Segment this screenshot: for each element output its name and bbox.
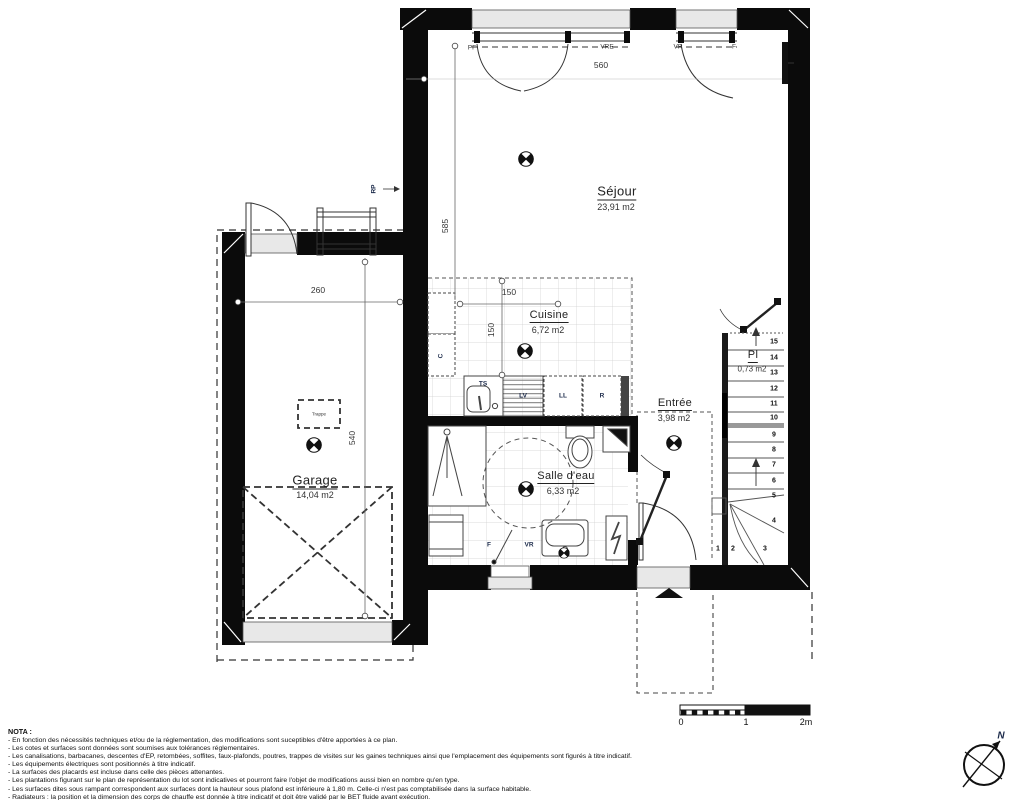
entrance-door-leaf xyxy=(639,503,643,560)
stair-step-number: 12 xyxy=(770,386,778,393)
window-label-vr: VR xyxy=(524,542,533,549)
rp-label: RP xyxy=(371,184,378,193)
porch-dashes xyxy=(637,592,713,693)
opening-label-vr: VR xyxy=(673,44,682,51)
dim-560: 560 xyxy=(594,60,608,70)
french-door-right-swing xyxy=(524,44,568,91)
unit-label-ts: TS xyxy=(479,381,487,388)
room-label-entree: Entrée xyxy=(658,397,692,411)
stair-stringer xyxy=(722,333,728,565)
stair-step-number: 10 xyxy=(770,415,778,422)
nota-line: - La surfaces des placards est incluse d… xyxy=(8,769,1003,777)
wall-light-icon xyxy=(559,548,569,558)
stair-step-number: 11 xyxy=(770,401,777,408)
room-area-placard: 0,73 m2 xyxy=(738,365,767,374)
scale-two: 2m xyxy=(800,717,813,727)
stair-step-number: 7 xyxy=(772,462,776,469)
floor-plan: PF VRE VR F 560 585 RP Séjour 23,91 m2 1… xyxy=(0,0,1009,800)
trappe-label: Trappe xyxy=(312,412,326,417)
dim-150-v: 150 xyxy=(486,323,496,337)
nota-line: - Les cotes et surfaces sont données son… xyxy=(8,745,1003,753)
room-area-entree: 3,98 m2 xyxy=(658,413,691,423)
wc-bowl xyxy=(568,436,592,468)
garage-door-leaf xyxy=(246,203,251,256)
floor-plan-drawing xyxy=(0,0,1009,800)
bath-door-leaf xyxy=(640,475,667,541)
stair-step-number: 2 xyxy=(731,546,735,553)
room-label-garage: Garage xyxy=(292,473,337,490)
stair-step-number: 9 xyxy=(772,432,776,439)
ceiling-light-icon xyxy=(518,344,532,358)
room-label-cuisine: Cuisine xyxy=(530,309,569,323)
stair-step-number: 5 xyxy=(772,493,776,500)
room-area-cuisine: 6,72 m2 xyxy=(532,325,565,335)
stair-step-number: 13 xyxy=(770,370,778,377)
nota-line: - Les canalisations, barbacanes, descent… xyxy=(8,753,1003,761)
unit-label-c: C xyxy=(438,354,445,359)
stair-step-number: 8 xyxy=(772,447,776,454)
nota-block: NOTA : - En fonction des nécessités tech… xyxy=(8,727,1003,800)
window-door-swing xyxy=(681,44,733,98)
tall-unit-upper xyxy=(428,293,455,334)
nota-line: - Radiateurs : la position et la dimensi… xyxy=(8,794,1003,800)
room-area-garage: 14,04 m2 xyxy=(296,490,334,500)
stair-step-number: 3 xyxy=(763,546,767,553)
room-area-salle-deau: 6,33 m2 xyxy=(547,486,580,496)
dim-540: 540 xyxy=(347,431,357,445)
towel-radiator xyxy=(429,515,463,556)
shower-tray xyxy=(428,426,486,506)
stair-landing-band xyxy=(728,423,784,428)
scale-zero: 0 xyxy=(678,717,683,727)
gate-rail-top xyxy=(317,212,376,217)
dim-150-h: 150 xyxy=(502,287,516,297)
stair-step-number: 6 xyxy=(772,478,776,485)
stair-top-door-leaf xyxy=(744,303,777,330)
nota-line: - En fonction des nécessités techniques … xyxy=(8,737,1003,745)
dim-585: 585 xyxy=(440,219,450,233)
unit-label-lv: LV xyxy=(519,393,527,400)
rp-arrow xyxy=(394,186,400,192)
dim-260: 260 xyxy=(311,285,325,295)
nota-line: - Les équipements électriques sont posit… xyxy=(8,761,1003,769)
stair-step-number: 15 xyxy=(770,339,778,346)
french-door-left-swing xyxy=(477,44,521,91)
nota-title: NOTA : xyxy=(8,727,1003,736)
unit-label-ll: LL xyxy=(559,393,567,400)
nota-line: - Les surfaces dites sous rampant corres… xyxy=(8,786,1003,794)
stair-step-number: 14 xyxy=(770,355,778,362)
room-area-sejour: 23,91 m2 xyxy=(597,202,635,212)
stair-continue-arrow xyxy=(752,327,760,336)
ceiling-light-icon xyxy=(307,438,321,452)
room-label-placard: Pl xyxy=(748,349,758,363)
nota-line: - Les plantations figurant sur le plan d… xyxy=(8,777,1003,785)
unit-label-r: R xyxy=(600,393,605,400)
scale-bar xyxy=(680,705,810,715)
stair-up-arrow xyxy=(752,458,760,467)
room-label-sejour: Séjour xyxy=(597,184,636,201)
opening-label-f: F xyxy=(732,44,736,51)
ceiling-light-icon xyxy=(519,152,533,166)
opening-label-vre: VRE xyxy=(600,44,613,51)
ceiling-light-icon xyxy=(667,436,681,450)
scale-one: 1 xyxy=(743,717,748,727)
entrance-arrow xyxy=(655,588,683,598)
stair-step-number: 1 xyxy=(716,546,720,553)
stair-step-number: 4 xyxy=(772,518,776,525)
window-label-f: F xyxy=(487,542,491,549)
room-label-salle-deau: Salle d'eau xyxy=(537,470,594,484)
ceiling-light-icon xyxy=(519,482,533,496)
opening-label-pf: PF xyxy=(468,45,476,52)
